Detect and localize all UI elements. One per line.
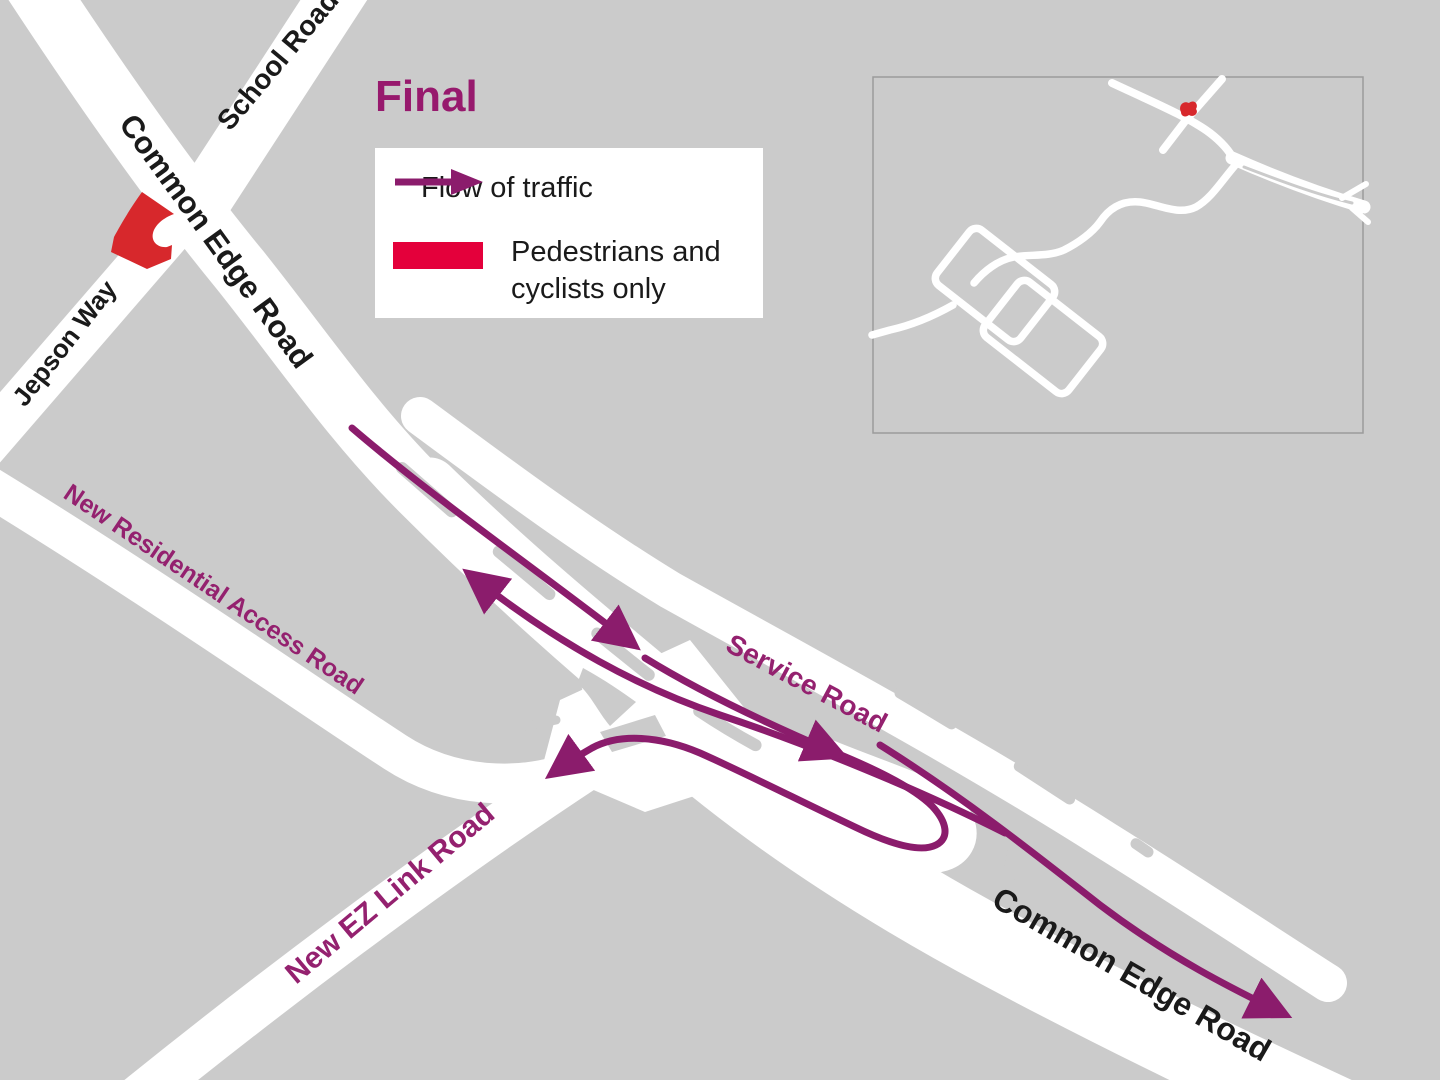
flow-of-traffic-arrow-icon: [393, 168, 485, 196]
label-jepson-way: Jepson Way: [6, 274, 123, 412]
pedestrians-cyclists-swatch-icon: [393, 242, 483, 269]
junction-island-dash: [517, 720, 556, 728]
page-title: Final: [375, 72, 478, 122]
label-new-ez-link-road: New EZ Link Road: [279, 797, 501, 990]
inset-map: [872, 77, 1368, 433]
traffic-scheme-page: Common Edge Road School Road Jepson Way …: [0, 0, 1440, 1080]
legend-box: Flow of traffic Pedestrians and cyclists…: [375, 148, 763, 318]
legend-ped-label-line2: cyclists only: [511, 273, 666, 305]
inset-location-marker-icon: [1180, 102, 1197, 117]
legend-ped-label-line1: Pedestrians and: [511, 236, 721, 268]
label-new-residential-access-road: New Residential Access Road: [59, 479, 369, 701]
